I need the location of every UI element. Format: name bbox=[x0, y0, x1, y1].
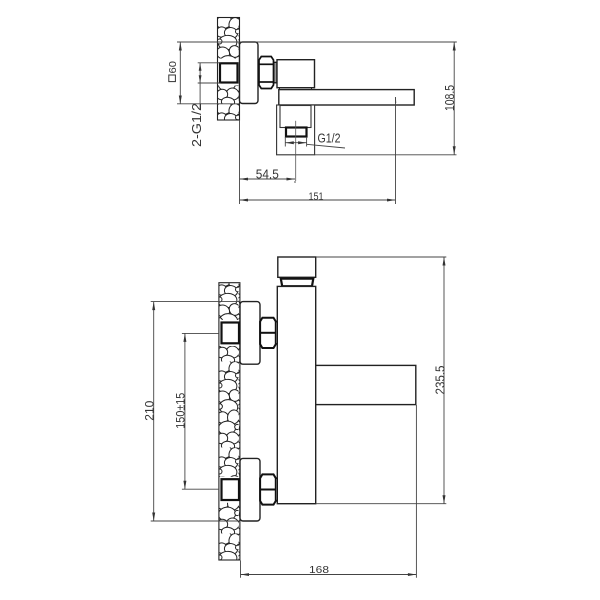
svg-text:210: 210 bbox=[143, 400, 157, 420]
svg-text:108.5: 108.5 bbox=[443, 85, 457, 111]
svg-text:G1/2: G1/2 bbox=[318, 131, 341, 146]
svg-text:54.5: 54.5 bbox=[256, 166, 279, 181]
svg-text:150±15: 150±15 bbox=[173, 392, 187, 428]
svg-text:235.5: 235.5 bbox=[432, 366, 447, 395]
svg-text:168: 168 bbox=[309, 564, 329, 576]
svg-text:2-G1/2: 2-G1/2 bbox=[190, 103, 204, 147]
svg-text:151: 151 bbox=[309, 191, 324, 203]
svg-text:60: 60 bbox=[167, 61, 179, 74]
